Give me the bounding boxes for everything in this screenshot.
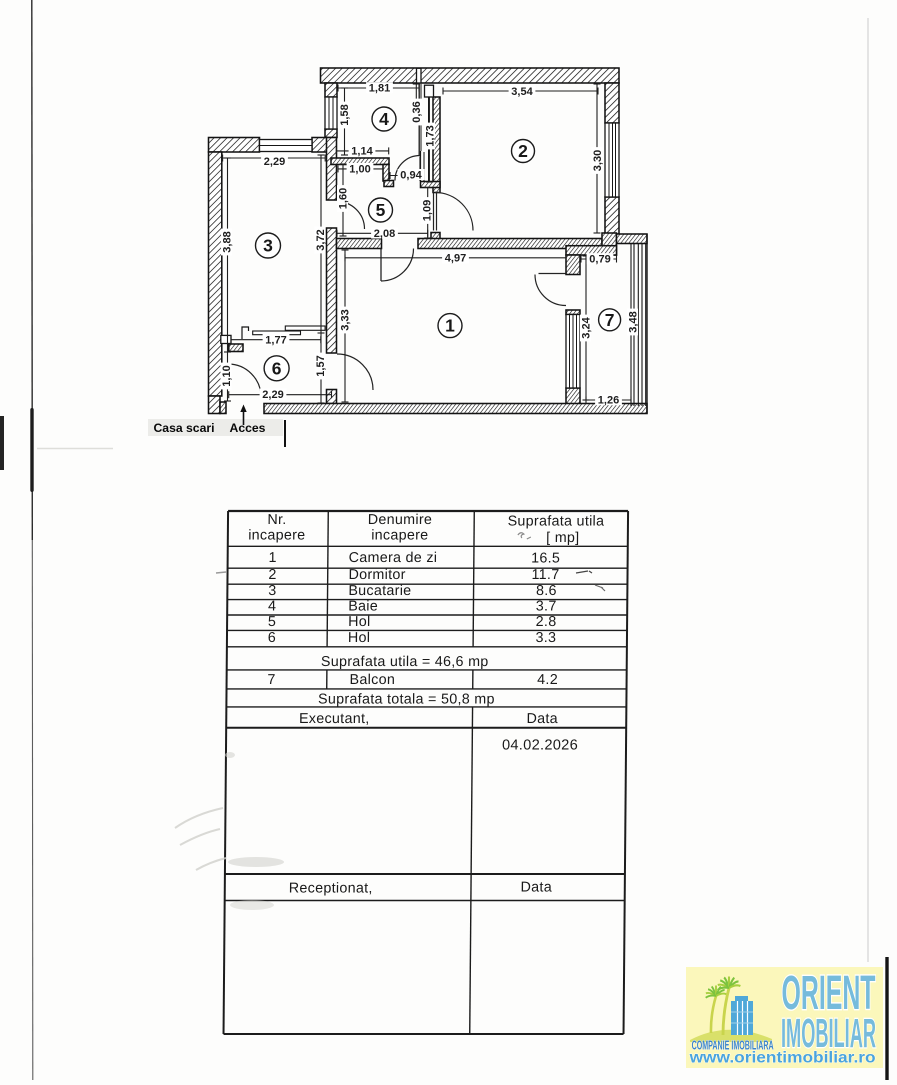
svg-text:7: 7 — [267, 672, 275, 688]
svg-text:2,08: 2,08 — [374, 228, 395, 240]
svg-text:Dormitor: Dormitor — [348, 567, 405, 583]
svg-text:16.5: 16.5 — [531, 551, 560, 567]
svg-text:1,10: 1,10 — [221, 365, 233, 386]
svg-text:7: 7 — [605, 310, 615, 330]
svg-text:3.3: 3.3 — [536, 630, 557, 646]
svg-text:Suprafata utila: Suprafata utila — [508, 514, 605, 530]
svg-text:1,81: 1,81 — [369, 83, 390, 95]
svg-text:1,77: 1,77 — [265, 334, 286, 346]
svg-text:Denumire: Denumire — [368, 512, 433, 528]
svg-text:6: 6 — [272, 358, 282, 378]
svg-text:3,24: 3,24 — [580, 316, 592, 338]
svg-text:6: 6 — [268, 630, 276, 646]
svg-text:2: 2 — [268, 567, 276, 583]
svg-text:4: 4 — [379, 109, 389, 129]
svg-text:[ mp]: [ mp] — [546, 530, 579, 546]
svg-text:3: 3 — [268, 583, 276, 599]
svg-text:4,97: 4,97 — [445, 253, 466, 265]
svg-text:1: 1 — [268, 550, 276, 566]
svg-text:incapere: incapere — [248, 528, 305, 544]
svg-text:Suprafata utila = 46,6 mp: Suprafata utila = 46,6 mp — [321, 654, 489, 670]
svg-text:3,33: 3,33 — [339, 309, 351, 330]
svg-text:2: 2 — [518, 141, 528, 161]
svg-text:11.7: 11.7 — [531, 567, 559, 583]
svg-text:1,26: 1,26 — [598, 395, 619, 407]
svg-text:2,29: 2,29 — [264, 156, 285, 168]
svg-text:Hol: Hol — [348, 630, 370, 646]
svg-text:Bucatarie: Bucatarie — [348, 583, 411, 599]
svg-text:1: 1 — [445, 316, 455, 336]
svg-text:8.6: 8.6 — [536, 583, 557, 599]
svg-text:Data: Data — [526, 711, 558, 727]
svg-text:www.orientimobiliar.ro: www.orientimobiliar.ro — [688, 1050, 875, 1067]
svg-text:3,48: 3,48 — [627, 311, 639, 332]
svg-text:Hol: Hol — [348, 614, 370, 630]
svg-text:1,14: 1,14 — [351, 145, 373, 157]
svg-text:2,29: 2,29 — [262, 389, 283, 401]
svg-text:Data: Data — [521, 880, 553, 896]
svg-text:Baie: Baie — [348, 599, 378, 615]
svg-text:3,30: 3,30 — [592, 150, 604, 171]
svg-text:1,57: 1,57 — [315, 355, 327, 376]
svg-text:3,54: 3,54 — [511, 86, 533, 98]
svg-text:Suprafata totala = 50,8 mp: Suprafata totala = 50,8 mp — [318, 692, 495, 708]
svg-text:1,60: 1,60 — [337, 188, 349, 209]
svg-text:Casa scari: Casa scari — [154, 421, 215, 435]
svg-text:1,58: 1,58 — [339, 104, 351, 125]
svg-text:3.7: 3.7 — [536, 599, 557, 615]
svg-text:04.02.2026: 04.02.2026 — [502, 738, 578, 754]
svg-text:4: 4 — [268, 599, 276, 615]
svg-text:Nr.: Nr. — [267, 512, 286, 528]
svg-text:0,79: 0,79 — [589, 254, 610, 266]
svg-text:1,09: 1,09 — [421, 200, 433, 221]
svg-text:3,88: 3,88 — [221, 231, 233, 252]
svg-text:Camera de zi: Camera de zi — [349, 550, 438, 566]
svg-text:1,00: 1,00 — [349, 163, 370, 175]
svg-text:4.2: 4.2 — [537, 672, 558, 688]
svg-text:Balcon: Balcon — [350, 672, 396, 688]
svg-text:Receptionat,: Receptionat, — [289, 881, 373, 897]
svg-text:3,72: 3,72 — [315, 229, 327, 250]
svg-text:1,73: 1,73 — [424, 125, 436, 146]
svg-text:0,36: 0,36 — [411, 101, 423, 122]
svg-text:Acces: Acces — [230, 421, 266, 435]
svg-text:5: 5 — [376, 200, 386, 220]
svg-text:3: 3 — [263, 236, 273, 256]
svg-text:5: 5 — [268, 614, 276, 630]
svg-text:Executant,: Executant, — [299, 711, 370, 727]
svg-text:incapere: incapere — [371, 528, 428, 544]
svg-text:0,94: 0,94 — [400, 169, 422, 181]
svg-text:2.8: 2.8 — [536, 614, 557, 630]
